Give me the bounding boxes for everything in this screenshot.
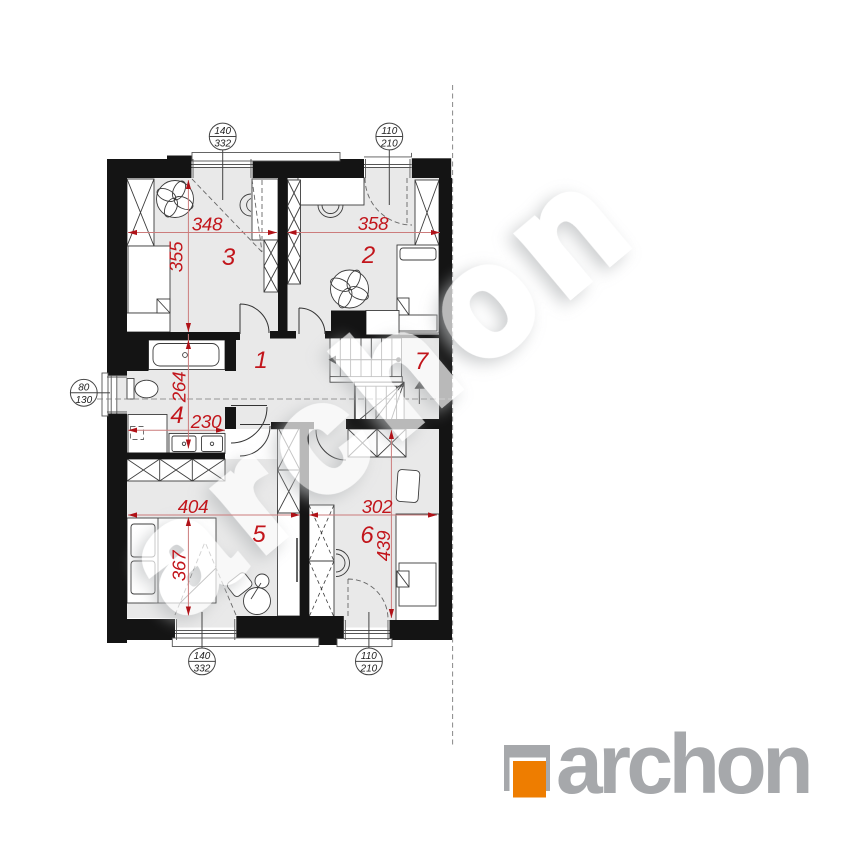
- svg-text:439: 439: [373, 530, 394, 561]
- svg-text:332: 332: [194, 663, 211, 674]
- svg-text:332: 332: [214, 139, 231, 150]
- svg-text:5: 5: [252, 521, 266, 548]
- svg-text:348: 348: [192, 214, 223, 235]
- svg-text:140: 140: [194, 651, 211, 662]
- svg-text:2: 2: [361, 242, 375, 269]
- svg-text:210: 210: [360, 663, 378, 674]
- svg-text:110: 110: [381, 126, 397, 137]
- svg-text:264: 264: [169, 372, 190, 403]
- svg-text:140: 140: [214, 126, 231, 137]
- svg-text:110: 110: [361, 651, 377, 662]
- svg-text:archon: archon: [556, 717, 809, 811]
- svg-text:6: 6: [360, 522, 374, 549]
- svg-text:355: 355: [166, 241, 187, 272]
- svg-text:404: 404: [178, 496, 208, 517]
- svg-text:7: 7: [415, 348, 430, 375]
- svg-text:130: 130: [75, 395, 92, 406]
- svg-text:3: 3: [222, 244, 236, 271]
- svg-text:210: 210: [380, 139, 398, 150]
- svg-text:230: 230: [190, 411, 222, 432]
- svg-text:1: 1: [254, 347, 267, 374]
- svg-text:302: 302: [362, 496, 393, 517]
- svg-text:358: 358: [358, 213, 389, 234]
- svg-text:4: 4: [170, 402, 183, 429]
- svg-text:80: 80: [78, 382, 90, 393]
- svg-text:367: 367: [169, 549, 190, 581]
